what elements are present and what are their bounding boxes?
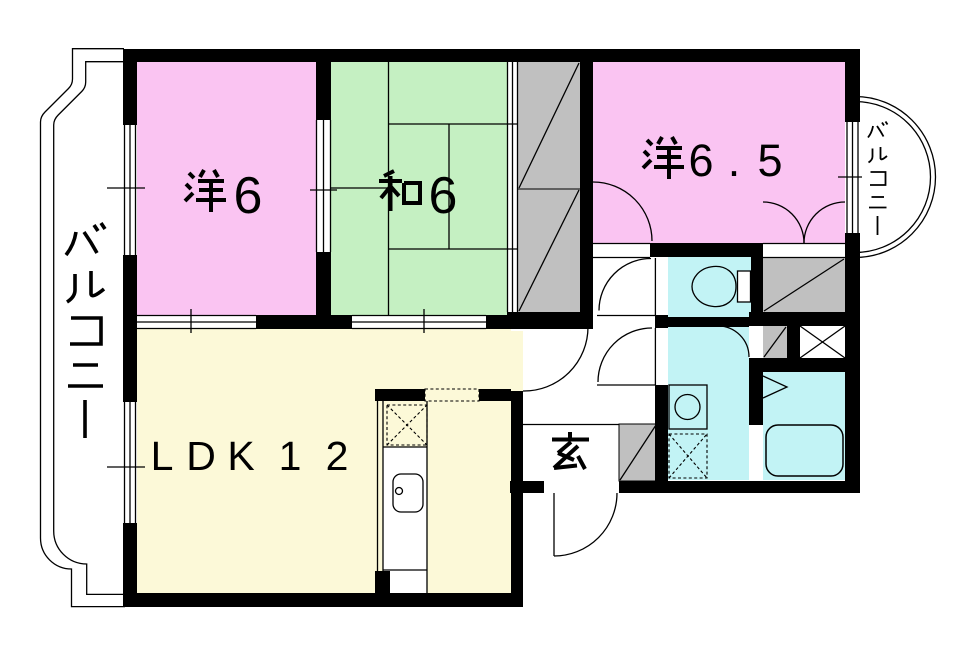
svg-text:6: 6: [429, 167, 458, 225]
svg-text:D: D: [186, 433, 216, 479]
svg-text:K: K: [227, 433, 254, 479]
svg-text:6: 6: [688, 135, 713, 186]
svg-text:1: 1: [279, 433, 302, 479]
svg-text:5: 5: [757, 135, 782, 186]
svg-text:.: .: [728, 135, 741, 186]
svg-text:2: 2: [326, 433, 349, 479]
svg-text:6: 6: [234, 167, 263, 225]
svg-text:L: L: [151, 433, 174, 479]
